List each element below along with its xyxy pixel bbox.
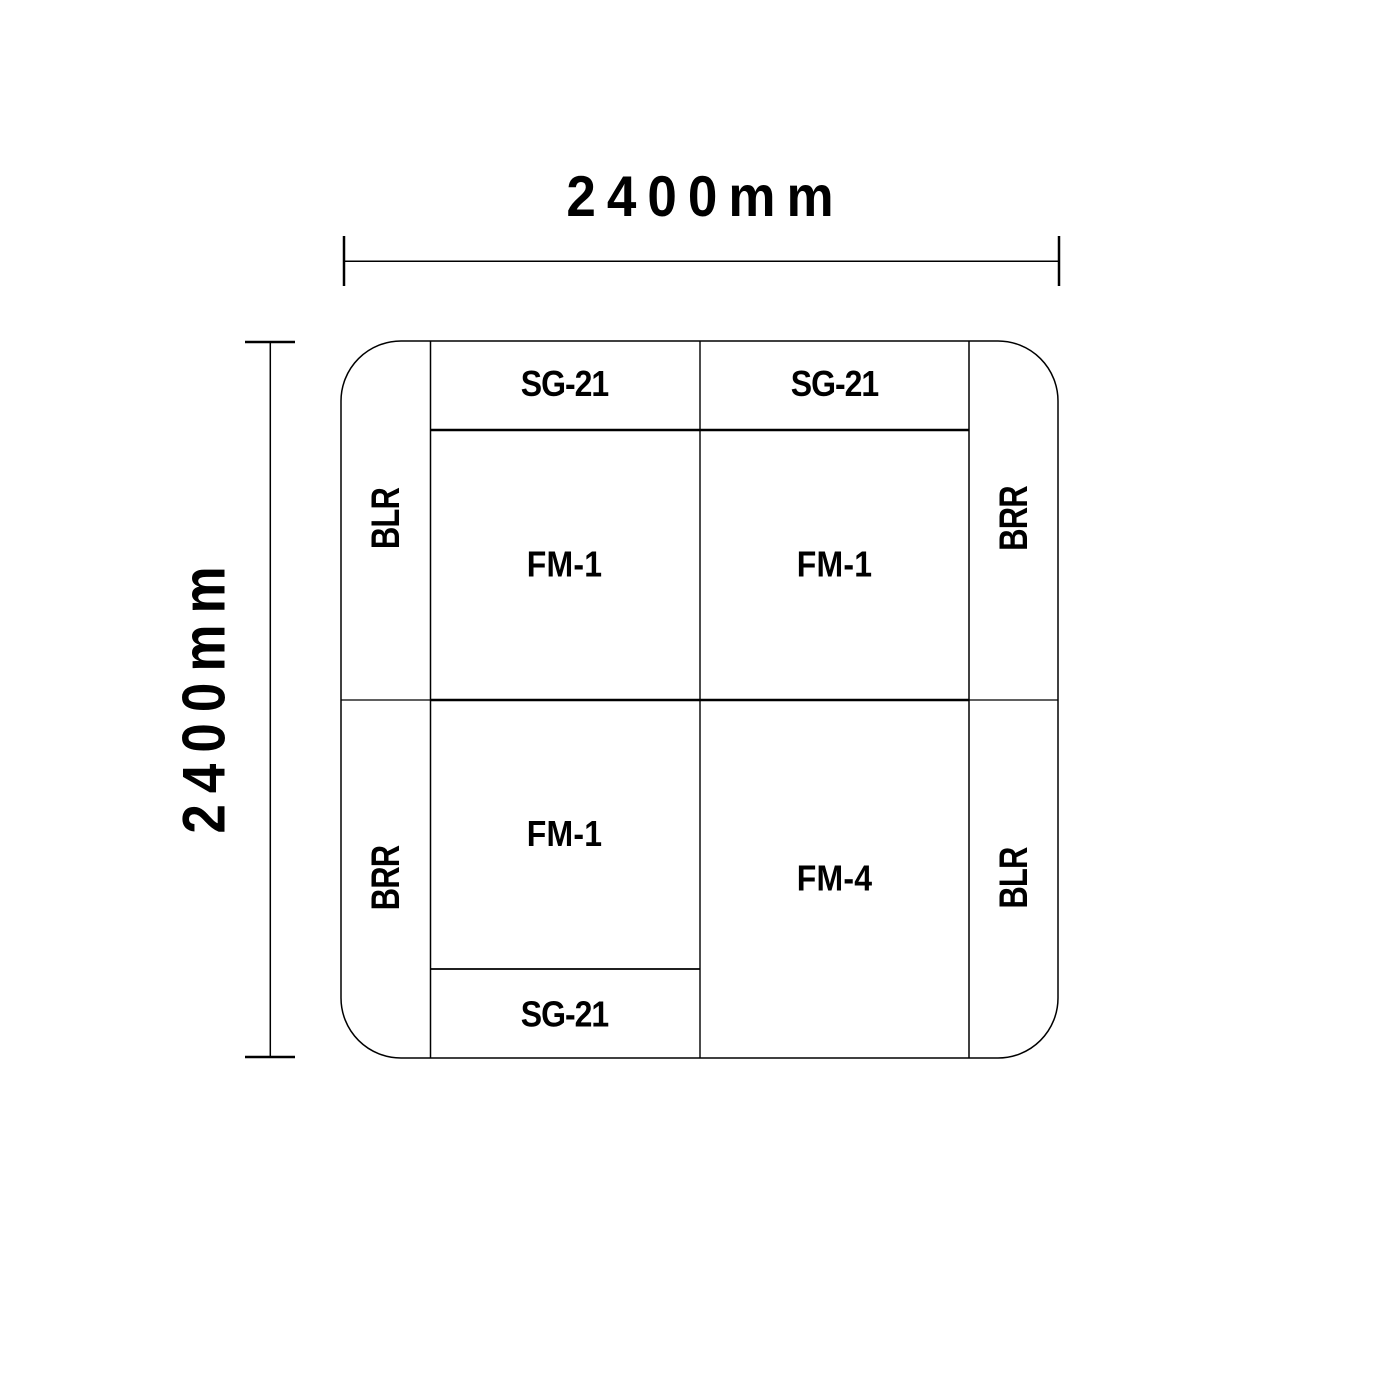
svg-text:2400mm: 2400mm (566, 164, 844, 228)
svg-text:BRR: BRR (363, 845, 408, 910)
svg-text:BLR: BLR (992, 847, 1037, 908)
svg-text:2400mm: 2400mm (170, 555, 237, 833)
svg-text:SG-21: SG-21 (791, 364, 879, 404)
svg-text:FM-1: FM-1 (527, 545, 602, 585)
svg-text:FM-1: FM-1 (527, 814, 602, 854)
svg-text:BRR: BRR (992, 486, 1037, 551)
svg-text:FM-1: FM-1 (797, 545, 872, 585)
svg-text:BLR: BLR (363, 488, 408, 549)
svg-text:SG-21: SG-21 (521, 364, 609, 404)
svg-text:FM-4: FM-4 (797, 859, 872, 899)
svg-text:SG-21: SG-21 (521, 995, 609, 1035)
